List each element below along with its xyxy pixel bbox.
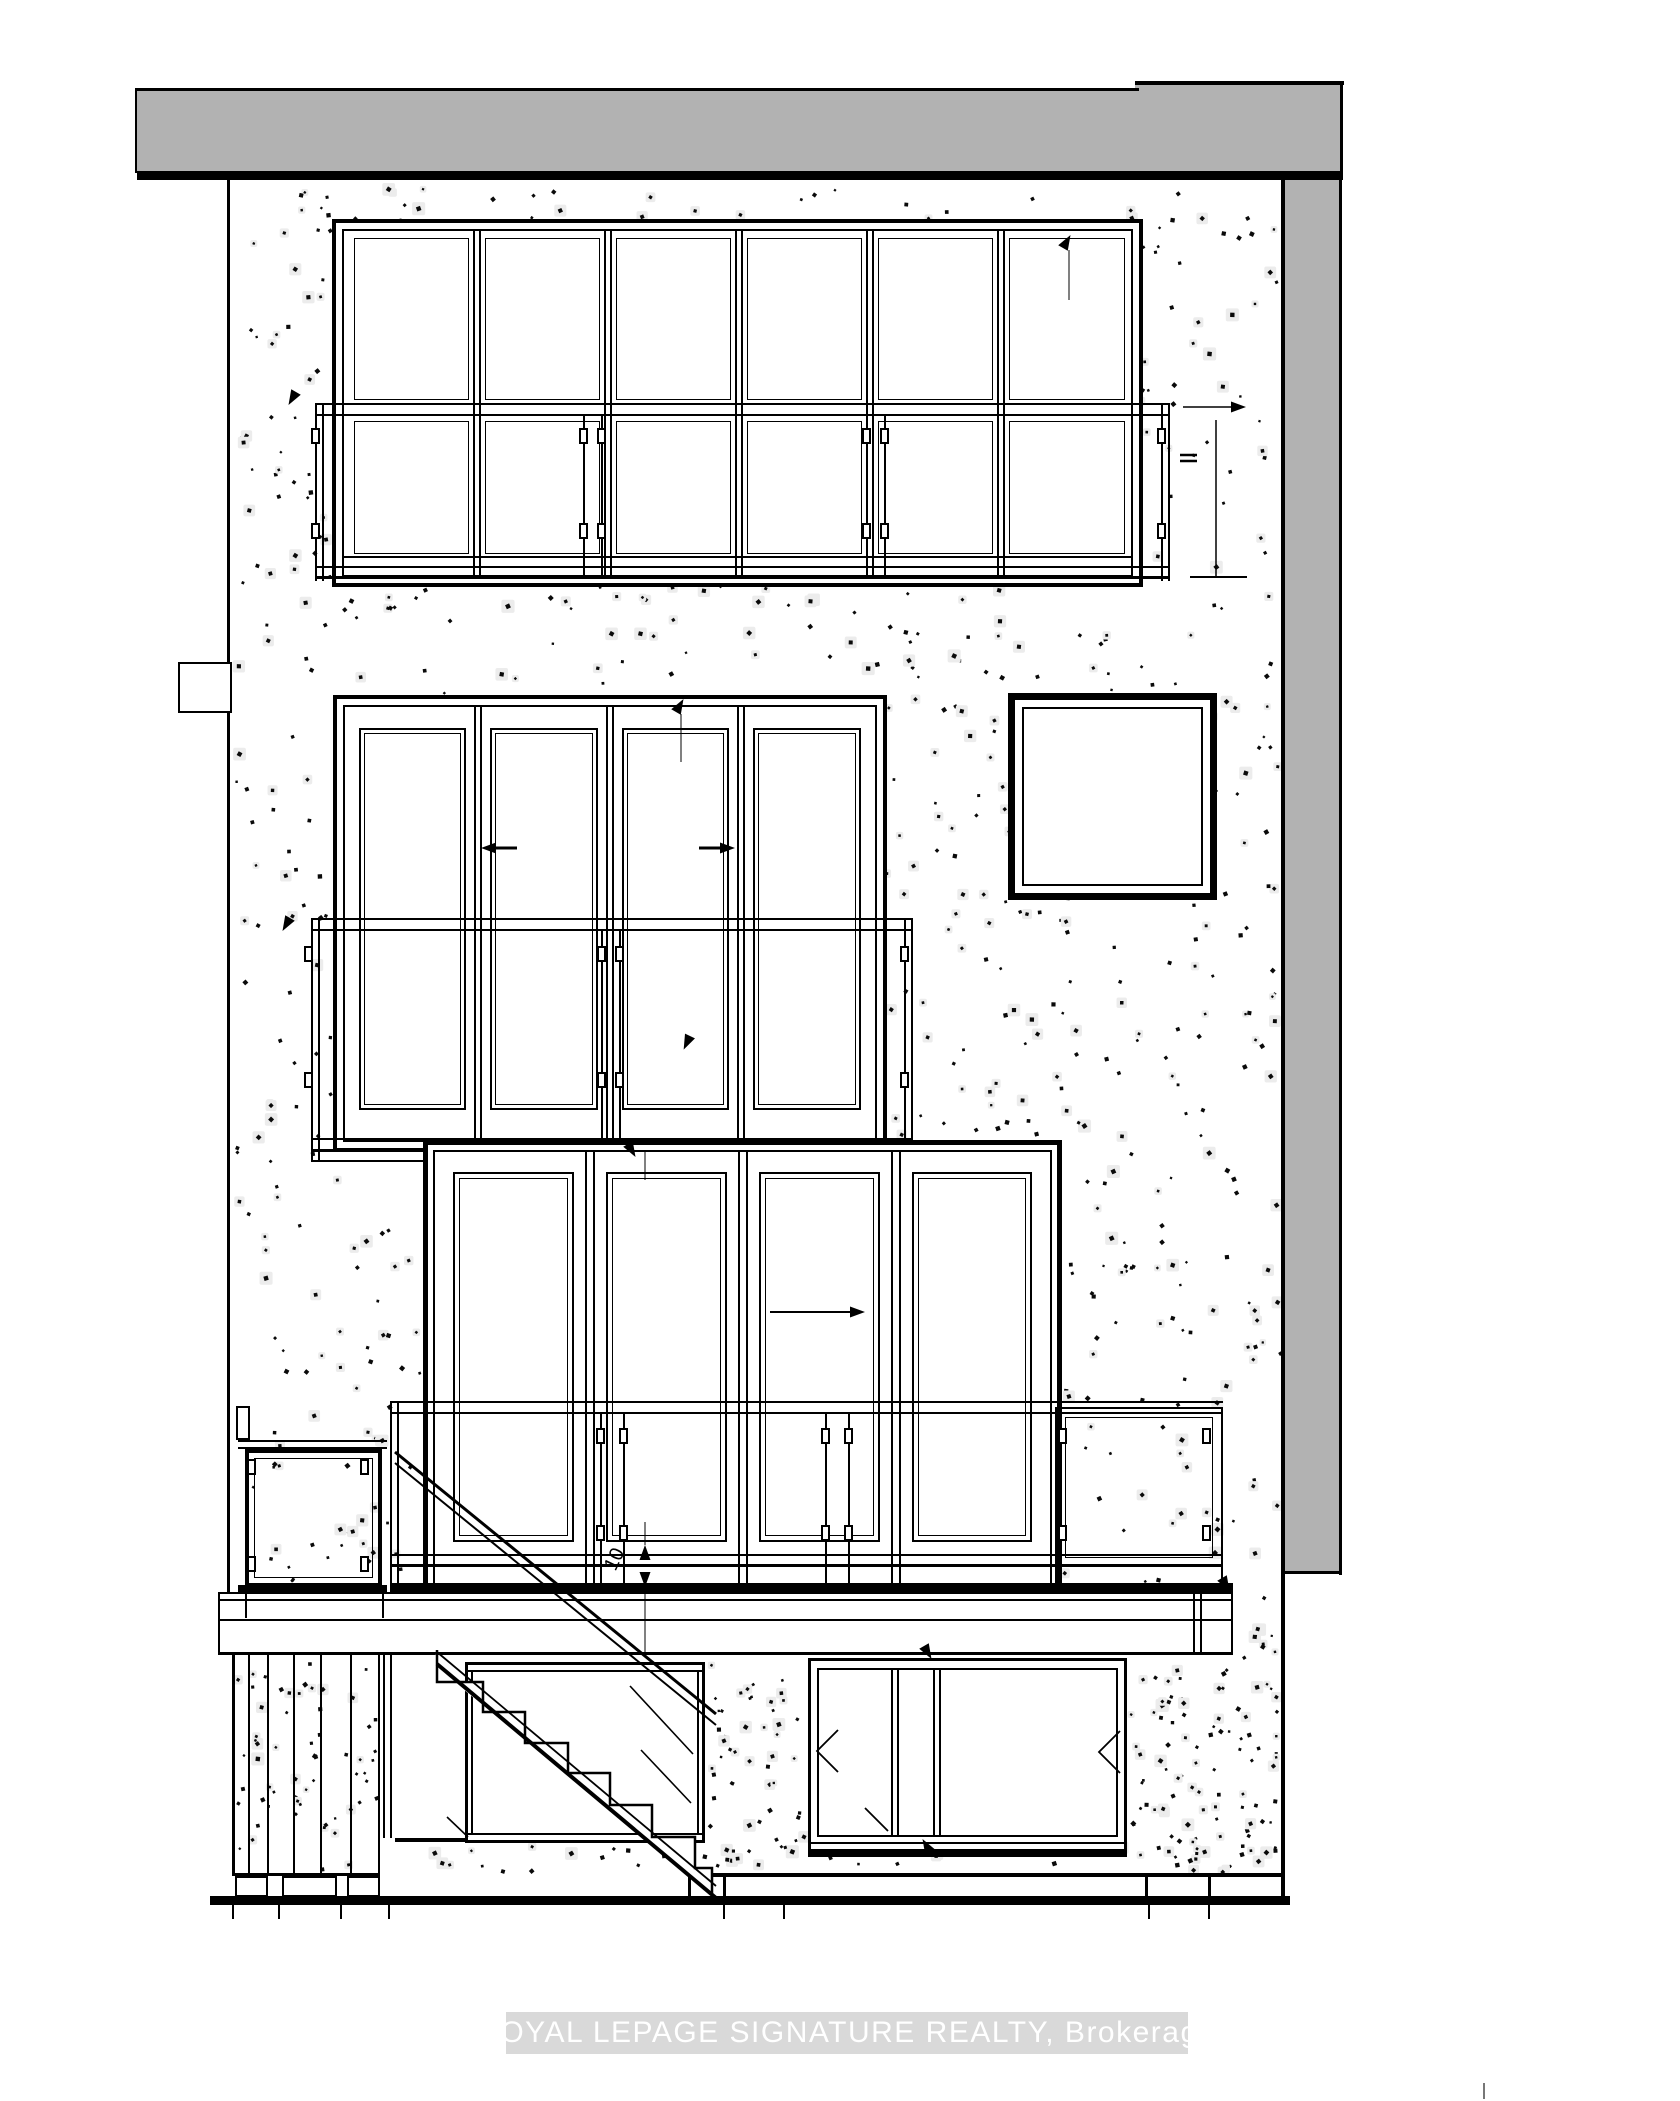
cad-line xyxy=(1285,1571,1342,1574)
door-pane-inner xyxy=(612,1178,721,1536)
window-pane xyxy=(1009,421,1125,554)
hinge xyxy=(1157,523,1166,539)
cad-line xyxy=(1208,1877,1211,1897)
elevation-sheet: ROYAL LEPAGE SIGNATURE REALTY, Brokerage… xyxy=(0,0,1680,2101)
hinge xyxy=(1157,428,1166,444)
window-pane xyxy=(747,238,862,400)
hinge xyxy=(844,1428,853,1444)
hinge xyxy=(1202,1428,1211,1444)
cad-line xyxy=(1281,180,1285,1905)
door-threshold xyxy=(390,1583,1233,1592)
cad-line xyxy=(1339,180,1342,1575)
cad-line xyxy=(218,1619,1233,1621)
cad-line xyxy=(480,707,482,1140)
cad-line xyxy=(939,1668,941,1837)
cad-line xyxy=(311,929,911,931)
cad-line xyxy=(318,918,320,1161)
brokerage-watermark: ROYAL LEPAGE SIGNATURE REALTY, Brokerage xyxy=(506,2012,1188,2054)
hinge xyxy=(304,946,313,962)
cad-line xyxy=(688,1873,1281,1877)
cad-line xyxy=(378,1655,380,1873)
cad-line xyxy=(218,1592,1233,1594)
cad-line xyxy=(238,1440,387,1442)
hinge xyxy=(1058,1525,1067,1541)
hinge xyxy=(596,1428,605,1444)
window-pane xyxy=(616,238,731,400)
cad-line xyxy=(248,1655,250,1873)
cad-line xyxy=(737,707,739,1140)
cad-line xyxy=(606,707,608,1140)
drawing-layer xyxy=(0,0,1680,2101)
parapet-right xyxy=(1285,180,1339,1573)
cad-line xyxy=(311,918,911,920)
roof-band-right xyxy=(1135,83,1342,173)
hinge xyxy=(880,428,889,444)
cad-line xyxy=(723,1877,726,1897)
hinge xyxy=(900,1072,909,1088)
footing xyxy=(235,1876,268,1897)
basement-window-sill xyxy=(808,1849,1127,1857)
hinge xyxy=(1058,1428,1067,1444)
cad-line xyxy=(315,403,1168,405)
cad-line xyxy=(390,1655,392,1838)
cad-line xyxy=(245,1594,247,1618)
basement-window-left xyxy=(465,1662,705,1843)
left-gate-panel-inner xyxy=(254,1458,373,1578)
cad-line xyxy=(471,1670,473,1835)
window-pane xyxy=(354,421,469,554)
sheet-corner-tick xyxy=(1483,2083,1485,2099)
hinge xyxy=(304,1072,313,1088)
hinge xyxy=(596,1525,605,1541)
ground-line xyxy=(210,1896,1290,1905)
footing xyxy=(347,1876,380,1897)
hinge xyxy=(247,1556,256,1572)
door-pane-inner xyxy=(765,1178,874,1536)
door-pane-inner xyxy=(459,1178,568,1536)
hinge xyxy=(597,523,606,539)
cad-line xyxy=(468,1833,702,1835)
window-pane xyxy=(878,421,993,554)
cad-line xyxy=(388,1905,390,1919)
cad-line xyxy=(1200,1592,1202,1654)
cad-line xyxy=(315,576,1168,579)
hinge xyxy=(1202,1525,1211,1541)
cad-line xyxy=(933,1668,935,1837)
cad-line xyxy=(593,1152,595,1585)
footing xyxy=(282,1876,337,1897)
hinge xyxy=(619,1428,628,1444)
cad-line xyxy=(315,414,1168,416)
cad-line xyxy=(293,1655,295,1873)
cad-line xyxy=(619,929,621,1151)
cad-line xyxy=(137,171,1343,180)
window-pane xyxy=(354,238,469,400)
right-railing-panel-inner xyxy=(1065,1417,1213,1558)
window-pane xyxy=(878,238,993,400)
hinge xyxy=(615,946,624,962)
cad-line xyxy=(899,1152,901,1585)
hinge xyxy=(597,1072,606,1088)
watermark-text: ROYAL LEPAGE SIGNATURE REALTY, Brokerage xyxy=(477,2016,1217,2050)
basement-window-right-inner xyxy=(817,1668,1118,1837)
hinge xyxy=(360,1556,369,1572)
cad-line xyxy=(218,1599,1233,1601)
cad-line xyxy=(350,1655,352,1873)
cad-line xyxy=(135,88,1139,91)
cad-line xyxy=(322,403,324,581)
cad-line xyxy=(278,1905,280,1919)
cad-line xyxy=(383,1655,385,1838)
hinge xyxy=(597,428,606,444)
hinge xyxy=(900,946,909,962)
door-pane-inner xyxy=(918,1178,1026,1536)
cad-line xyxy=(612,707,614,1140)
cad-line xyxy=(218,1592,220,1655)
hinge xyxy=(360,1459,369,1475)
cad-line xyxy=(227,180,230,1592)
cad-line xyxy=(738,1152,740,1585)
wall-protrusion-left xyxy=(178,662,232,713)
cad-line xyxy=(320,1655,322,1873)
cad-line xyxy=(218,1652,1233,1655)
hinge xyxy=(862,428,871,444)
cad-line xyxy=(342,556,1133,558)
cad-line xyxy=(891,1668,893,1837)
hinge xyxy=(821,1428,830,1444)
window-pane xyxy=(616,421,731,554)
cad-line xyxy=(811,1842,1124,1844)
hinge xyxy=(619,1525,628,1541)
cad-line xyxy=(601,929,603,1151)
hinge xyxy=(311,428,320,444)
cad-line xyxy=(232,1905,234,1919)
cad-line xyxy=(911,918,913,1161)
cad-line xyxy=(891,1152,893,1585)
cad-line xyxy=(390,1401,392,1591)
cad-line xyxy=(468,1670,702,1672)
hinge xyxy=(311,523,320,539)
cad-line xyxy=(1168,403,1170,581)
window-pane xyxy=(747,421,862,554)
upper-right-window-inner xyxy=(1022,707,1203,886)
cad-line xyxy=(1145,1877,1148,1897)
cad-line xyxy=(340,1905,342,1919)
cad-line xyxy=(743,707,745,1140)
cad-line xyxy=(783,1905,785,1919)
cad-line xyxy=(1135,81,1344,85)
cad-line xyxy=(897,1668,899,1837)
window-pane xyxy=(1009,238,1125,400)
hinge xyxy=(615,1072,624,1088)
cad-line xyxy=(474,707,476,1140)
hinge xyxy=(579,523,588,539)
hinge xyxy=(247,1459,256,1475)
cad-line xyxy=(1208,1905,1210,1919)
cad-line xyxy=(688,1877,691,1897)
window-pane xyxy=(485,238,600,400)
cad-line xyxy=(723,1905,725,1919)
cad-line xyxy=(390,1401,1223,1403)
hinge xyxy=(862,523,871,539)
hinge xyxy=(579,428,588,444)
cad-line xyxy=(1340,81,1343,180)
cad-line xyxy=(267,1655,269,1873)
cad-line xyxy=(1231,1592,1233,1655)
cad-line xyxy=(397,1401,399,1591)
hinge xyxy=(597,946,606,962)
hinge xyxy=(844,1525,853,1541)
cad-line xyxy=(585,1152,587,1585)
cad-line xyxy=(315,566,1168,568)
cad-line xyxy=(746,1152,748,1585)
gate-sill xyxy=(238,1585,387,1592)
gate-post xyxy=(236,1406,250,1440)
cad-line xyxy=(697,1670,699,1835)
cad-line xyxy=(232,1655,235,1875)
cad-line xyxy=(1193,1592,1195,1654)
hinge xyxy=(821,1525,830,1541)
cad-line xyxy=(1148,1905,1150,1919)
cad-line xyxy=(382,1594,384,1618)
hinge xyxy=(880,523,889,539)
cad-line xyxy=(135,88,137,173)
